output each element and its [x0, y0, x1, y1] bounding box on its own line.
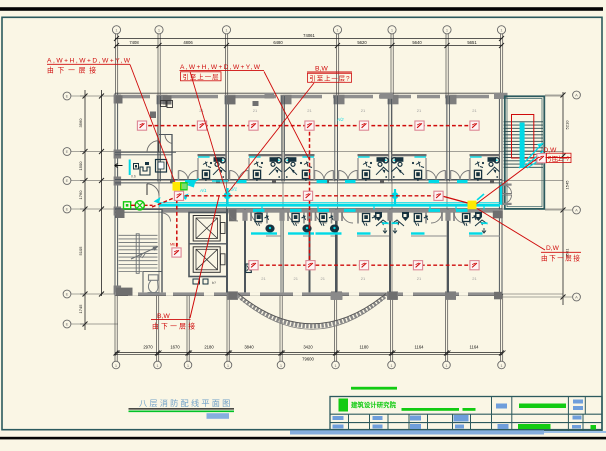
svg-text:7408: 7408	[129, 40, 139, 45]
svg-text:21: 21	[472, 276, 477, 281]
svg-text:4806: 4806	[183, 40, 193, 45]
svg-text:A,W+H,W+D,W+Y,W: A,W+H,W+D,W+Y,W	[180, 64, 261, 71]
svg-text:A: A	[575, 208, 578, 213]
svg-text:MEB: MEB	[170, 243, 179, 247]
svg-text:3840: 3840	[244, 344, 254, 349]
svg-text:1164: 1164	[469, 344, 479, 349]
svg-text:1164: 1164	[414, 344, 424, 349]
svg-text:E: E	[66, 292, 69, 297]
svg-text:3420: 3420	[303, 344, 313, 349]
svg-text:1745: 1745	[78, 304, 83, 314]
svg-text:E: E	[66, 207, 69, 212]
svg-text:E: E	[66, 322, 69, 327]
svg-text:D,W: D,W	[544, 147, 558, 154]
svg-text:3560: 3560	[78, 118, 83, 128]
svg-text:21: 21	[294, 276, 299, 281]
svg-text:建筑设计研究院: 建筑设计研究院	[350, 400, 397, 409]
svg-text:21: 21	[417, 108, 422, 113]
svg-text:B,W: B,W	[157, 313, 170, 320]
svg-text:1760: 1760	[78, 190, 83, 200]
svg-text:b?: b?	[212, 281, 216, 285]
svg-text:A: A	[575, 93, 578, 98]
svg-text:21: 21	[361, 276, 366, 281]
svg-text:21: 21	[261, 276, 266, 281]
svg-text:0.6: 0.6	[131, 175, 136, 179]
svg-text:79600: 79600	[302, 357, 314, 362]
svg-text:21: 21	[321, 276, 326, 281]
svg-text:2180: 2180	[204, 344, 214, 349]
svg-text:1545: 1545	[565, 180, 570, 190]
svg-text:E: E	[66, 94, 69, 99]
svg-text:B,W: B,W	[315, 66, 328, 73]
svg-text:A/1: A/1	[199, 188, 207, 193]
svg-text:由下一层接: 由下一层接	[541, 254, 580, 263]
svg-text:引至上一?: 引至上一?	[548, 155, 571, 163]
svg-text:1180: 1180	[359, 344, 369, 349]
svg-text:B/1: B/1	[231, 187, 238, 192]
svg-text:21: 21	[253, 108, 258, 113]
svg-text:6480: 6480	[273, 40, 283, 45]
svg-text:5210: 5210	[565, 120, 570, 130]
svg-text:D,W: D,W	[546, 245, 560, 252]
svg-text:5620: 5620	[357, 40, 367, 45]
svg-text:74061: 74061	[303, 33, 315, 38]
svg-text:1500: 1500	[78, 161, 83, 171]
svg-text:5640: 5640	[412, 40, 422, 45]
svg-text:引至上一层: 引至上一层	[183, 72, 220, 81]
svg-text:1670: 1670	[170, 344, 180, 349]
svg-text:A,W+H,W+D,W+Y,W: A,W+H,W+D,W+Y,W	[47, 58, 131, 65]
svg-text:5105: 5105	[78, 246, 83, 256]
svg-text:21: 21	[307, 108, 312, 113]
svg-text:八层消防配线平面图: 八层消防配线平面图	[139, 398, 233, 408]
svg-text:由下一层接: 由下一层接	[152, 322, 195, 331]
svg-text:E: E	[66, 149, 69, 154]
svg-text:A: A	[575, 295, 578, 300]
svg-text:引至上一层?: 引至上一层?	[310, 74, 350, 83]
svg-text:A/2: A/2	[336, 117, 344, 122]
svg-text:E: E	[66, 178, 69, 183]
svg-text:21: 21	[472, 108, 477, 113]
svg-text:21: 21	[417, 276, 422, 281]
svg-text:21: 21	[361, 108, 366, 113]
svg-text:2970: 2970	[143, 344, 153, 349]
svg-text:5651: 5651	[467, 40, 477, 45]
